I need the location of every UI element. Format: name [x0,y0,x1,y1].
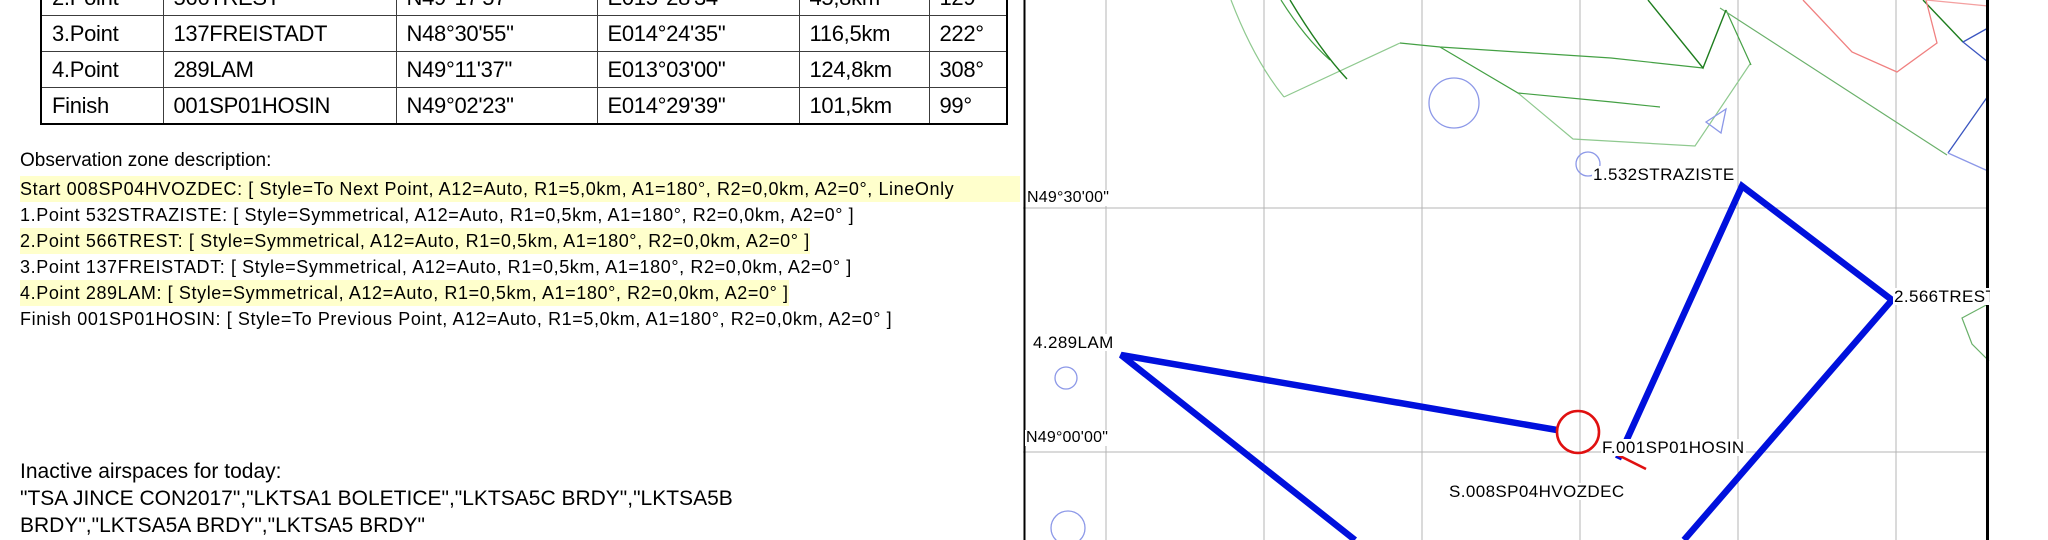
inactive-airspaces-line: BRDY","LKTSA5A BRDY","LKTSA5 BRDY" [20,512,733,539]
waypoint-cell-dist: 45,8km [799,0,929,16]
waypoint-cell-lat: N49°11'37" [396,52,597,88]
waypoint-row: 4.Point289LAMN49°11'37"E013°03'00"124,8k… [41,52,1007,88]
waypoint-cell-point: Finish [41,88,163,125]
inactive-airspaces-line: "TSA JINCE CON2017","LKTSA1 BOLETICE","L… [20,485,733,512]
map-canvas [1023,0,1990,540]
observation-zone-line: 2.Point 566TREST: [ Style=Symmetrical, A… [20,228,810,254]
observation-zone-text: Start 008SP04HVOZDEC: [ Style=To Next Po… [20,176,1020,202]
waypoint-cell-course: 222° [929,16,1007,52]
waypoint-label-trest: 2.566TREST [1893,288,1990,305]
observation-zone-line: Finish 001SP01HOSIN: [ Style=To Previous… [20,306,892,332]
waypoint-cell-lat: N48°30'55" [396,16,597,52]
waypoint-cell-lon: E015°28'34" [597,0,799,16]
task-map[interactable]: N49°30'00" N49°00'00" 1.532STRAZISTE 2.5… [1023,0,1990,540]
observation-zone-line: 4.Point 289LAM: [ Style=Symmetrical, A12… [20,280,789,306]
waypoint-cell-course: 99° [929,88,1007,125]
waypoint-table: 2.Point566TRESTN49°17'57"E015°28'34"45,8… [40,0,1008,125]
waypoint-label-hvozdec: S.008SP04HVOZDEC [1448,483,1626,500]
airspace-blue [1706,28,1988,171]
map-grid [1023,0,1988,540]
waypoint-cell-dist: 124,8km [799,52,929,88]
waypoint-cell-lat: N49°02'23" [396,88,597,125]
waypoint-cell-point: 4.Point [41,52,163,88]
waypoint-cell-lat: N49°17'57" [396,0,597,16]
task-sheet: 2.Point566TRESTN49°17'57"E015°28'34"45,8… [0,0,2048,540]
waypoint-cell-dist: 101,5km [799,88,929,125]
latitude-label-49-30: N49°30'00" [1026,190,1110,206]
waypoint-cell-course: 129° [929,0,1007,16]
observation-zone-text: Finish 001SP01HOSIN: [ Style=To Previous… [20,306,892,332]
waypoint-cell-point: 3.Point [41,16,163,52]
waypoint-cell-name: 137FREISTADT [163,16,396,52]
inactive-airspaces-header: Inactive airspaces for today: [20,458,733,485]
waypoint-cell-name: 001SP01HOSIN [163,88,396,125]
observation-zone-line: 1.Point 532STRAZISTE: [ Style=Symmetrica… [20,202,854,228]
airspace-green-light [1231,0,1750,146]
waypoint-row: Finish001SP01HOSINN49°02'23"E014°29'39"1… [41,88,1007,125]
town-circles [1051,78,1600,540]
waypoint-cell-lon: E014°24'35" [597,16,799,52]
waypoint-label-hosin: F.001SP01HOSIN [1601,439,1746,456]
waypoint-cell-name: 566TREST [163,0,396,16]
map-border [1025,0,1988,540]
waypoint-cell-name: 289LAM [163,52,396,88]
waypoint-row: 2.Point566TRESTN49°17'57"E015°28'34"45,8… [41,0,1007,16]
task-document-pane: 2.Point566TRESTN49°17'57"E015°28'34"45,8… [0,0,1023,540]
waypoint-row: 3.Point137FREISTADTN48°30'55"E014°24'35"… [41,16,1007,52]
waypoint-label-lam: 4.289LAM [1032,334,1115,351]
observation-zone-text: 2.Point 566TREST: [ Style=Symmetrical, A… [20,228,810,254]
waypoint-cell-lon: E014°29'39" [597,88,799,125]
observation-zone-header: Observation zone description: [20,150,271,172]
waypoint-cell-point: 2.Point [41,0,163,16]
observation-zone-text: 3.Point 137FREISTADT: [ Style=Symmetrica… [20,254,852,280]
airspace-green-dark [1290,0,1963,79]
observation-zone-text: 4.Point 289LAM: [ Style=Symmetrical, A12… [20,280,789,306]
inactive-airspaces-block: Inactive airspaces for today: "TSA JINCE… [20,458,733,539]
observation-zone-line: 3.Point 137FREISTADT: [ Style=Symmetrica… [20,254,852,280]
start-finish-ring [1557,411,1599,453]
latitude-label-49-00: N49°00'00" [1025,430,1109,446]
waypoint-label-straziste: 1.532STRAZISTE [1592,166,1736,183]
waypoint-cell-lon: E013°03'00" [597,52,799,88]
observation-zone-text: 1.Point 532STRAZISTE: [ Style=Symmetrica… [20,202,854,228]
observation-zone-line: Start 008SP04HVOZDEC: [ Style=To Next Po… [20,176,1020,202]
waypoint-cell-course: 308° [929,52,1007,88]
waypoint-cell-dist: 116,5km [799,16,929,52]
